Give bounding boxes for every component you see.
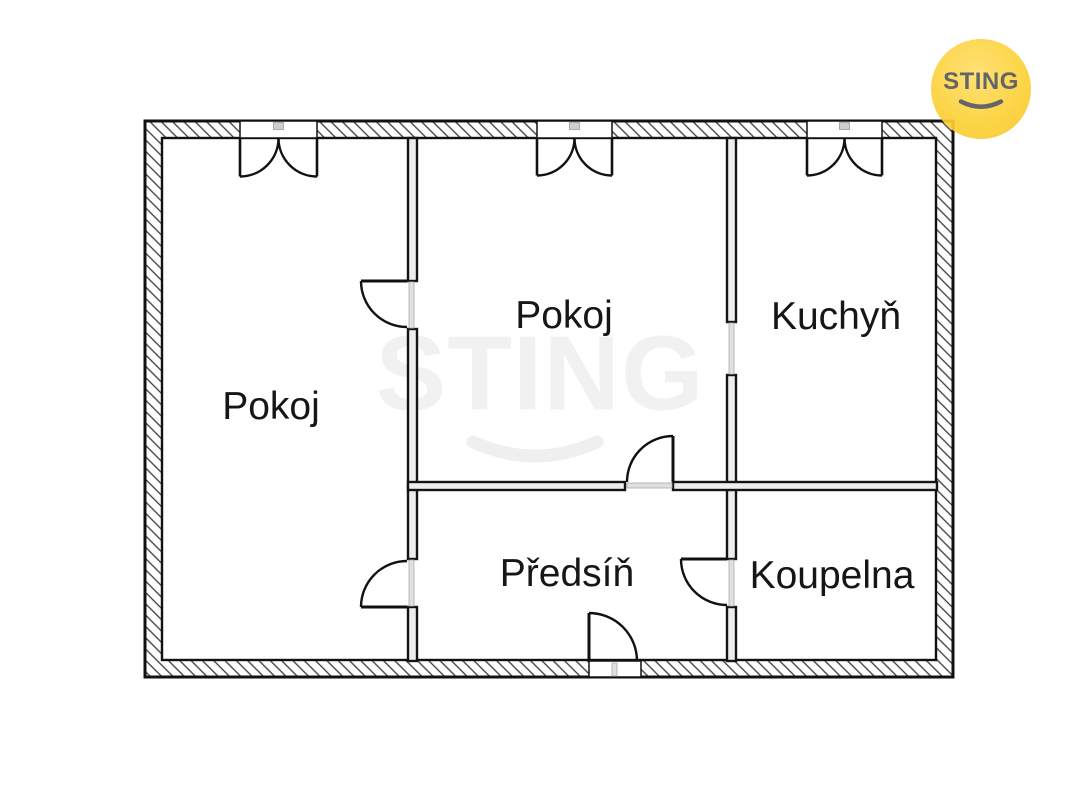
logo-text: STING bbox=[943, 70, 1019, 94]
wall-hall-right bbox=[673, 482, 937, 490]
room-label-room-middle: Pokoj bbox=[515, 294, 613, 338]
door-room-left-upper-swing-arc bbox=[361, 281, 407, 327]
room-label-kitchen: Kuchyň bbox=[771, 295, 901, 339]
door-room-left-lower-slab bbox=[409, 560, 414, 606]
floor-plan: PokojPokojKuchyňPředsíňKoupelna bbox=[0, 0, 1067, 800]
door-room-left-lower-swing-arc bbox=[361, 561, 407, 607]
floor-plan-drawing bbox=[0, 0, 1067, 800]
wall-kitchen-mid bbox=[727, 375, 736, 559]
window-room-left-frame-marker bbox=[274, 123, 284, 130]
window-room-middle-frame-marker bbox=[570, 123, 580, 130]
room-label-hall: Předsíň bbox=[500, 552, 634, 596]
wall-left-rooms-mid bbox=[408, 329, 417, 559]
door-entrance-swing-arc bbox=[589, 613, 637, 661]
wall-left-rooms-bottom bbox=[408, 607, 417, 661]
window-room-left-right-swing-arc bbox=[279, 138, 318, 177]
page-background: STING PokojPokojKuchyňPředsíňKoupelna ST… bbox=[0, 0, 1067, 800]
door-room-middle-swing-arc bbox=[627, 436, 673, 482]
door-room-left-upper-slab bbox=[409, 282, 414, 328]
wall-hall-left bbox=[408, 482, 625, 490]
window-kitchen-left-swing-arc bbox=[807, 138, 845, 176]
room-label-bathroom: Koupelna bbox=[750, 554, 915, 598]
passage-kitchen bbox=[729, 323, 734, 374]
door-bathroom-slab bbox=[729, 560, 734, 606]
window-room-left-left-swing-arc bbox=[240, 138, 279, 177]
door-bathroom-swing-arc bbox=[681, 559, 727, 605]
door-room-middle-slab bbox=[627, 483, 672, 488]
window-room-middle-left-swing-arc bbox=[537, 138, 575, 176]
logo-smile-icon bbox=[956, 97, 1006, 114]
window-kitchen-frame-marker bbox=[840, 123, 850, 130]
door-entrance-slab bbox=[612, 663, 617, 676]
wall-left-rooms-top bbox=[408, 138, 417, 281]
room-label-room-left: Pokoj bbox=[222, 385, 320, 429]
wall-kitchen-top bbox=[727, 138, 736, 322]
window-room-middle-right-swing-arc bbox=[575, 138, 613, 176]
wall-kitchen-bottom bbox=[727, 607, 736, 661]
window-kitchen-right-swing-arc bbox=[845, 138, 883, 176]
sting-logo: STING bbox=[931, 39, 1031, 139]
